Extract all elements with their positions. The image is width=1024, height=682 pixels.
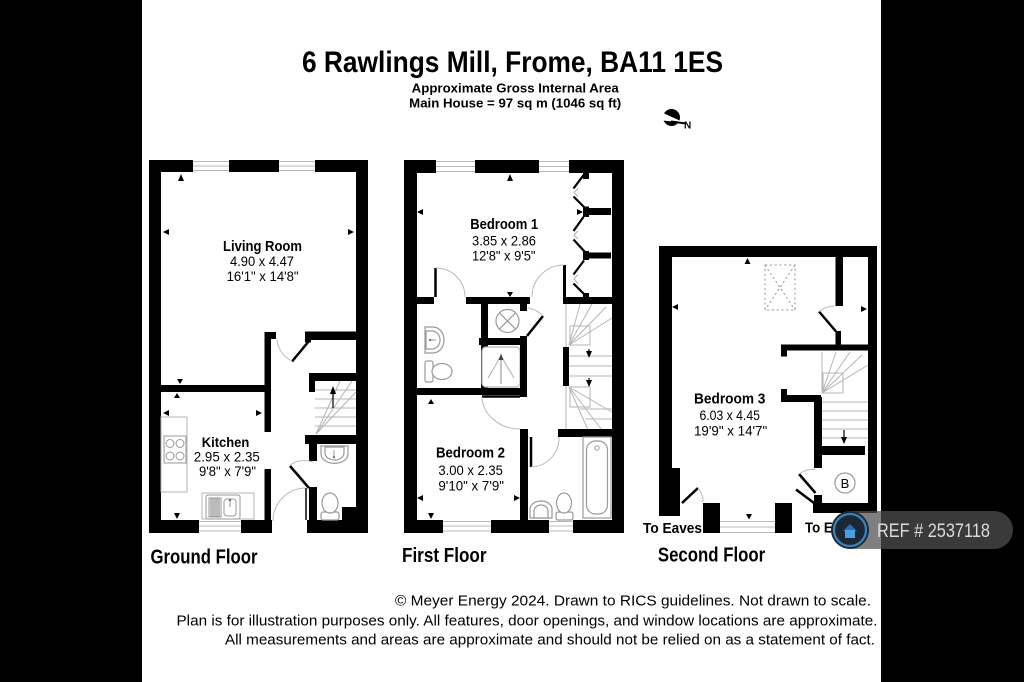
svg-text:First Floor: First Floor	[402, 545, 487, 567]
svg-text:Bedroom 1: Bedroom 1	[470, 217, 538, 233]
svg-text:REF # 2537118: REF # 2537118	[877, 520, 990, 542]
svg-text:© Meyer Energy 2024. Drawn to: © Meyer Energy 2024. Drawn to RICS guide…	[395, 593, 871, 610]
svg-text:6.03 x 4.45: 6.03 x 4.45	[700, 407, 761, 423]
svg-text:9'8" x 7'9": 9'8" x 7'9"	[199, 463, 256, 479]
svg-text:19'9" x 14'7": 19'9" x 14'7"	[694, 423, 767, 439]
svg-text:Plan is for illustration purpo: Plan is for illustration purposes only. …	[177, 613, 878, 630]
svg-text:3.85 x 2.86: 3.85 x 2.86	[472, 233, 536, 249]
svg-text:N: N	[684, 121, 691, 132]
svg-text:9'10" x 7'9": 9'10" x 7'9"	[438, 478, 504, 494]
svg-text:To Eaves: To Eaves	[643, 520, 702, 537]
svg-text:3.00 x 2.35: 3.00 x 2.35	[438, 462, 503, 478]
svg-text:12'8" x 9'5": 12'8" x 9'5"	[472, 248, 536, 264]
svg-text:Approximate Gross Internal Are: Approximate Gross Internal Area	[412, 82, 620, 96]
svg-text:Bedroom 3: Bedroom 3	[694, 392, 765, 408]
svg-text:16'1" x 14'8": 16'1" x 14'8"	[227, 268, 299, 284]
svg-text:Ground Floor: Ground Floor	[151, 547, 258, 569]
svg-text:Bedroom 2: Bedroom 2	[436, 446, 505, 462]
svg-text:6 Rawlings Mill, Frome, BA11 1: 6 Rawlings Mill, Frome, BA11 1ES	[302, 46, 723, 79]
svg-text:Second Floor: Second Floor	[658, 545, 765, 567]
svg-text:B: B	[841, 476, 850, 491]
svg-text:Main House = 97 sq m (1046 sq: Main House = 97 sq m (1046 sq ft)	[409, 97, 621, 111]
svg-text:4.90 x 4.47: 4.90 x 4.47	[230, 253, 294, 269]
svg-text:All measurements and areas are: All measurements and areas are approxima…	[225, 632, 875, 649]
